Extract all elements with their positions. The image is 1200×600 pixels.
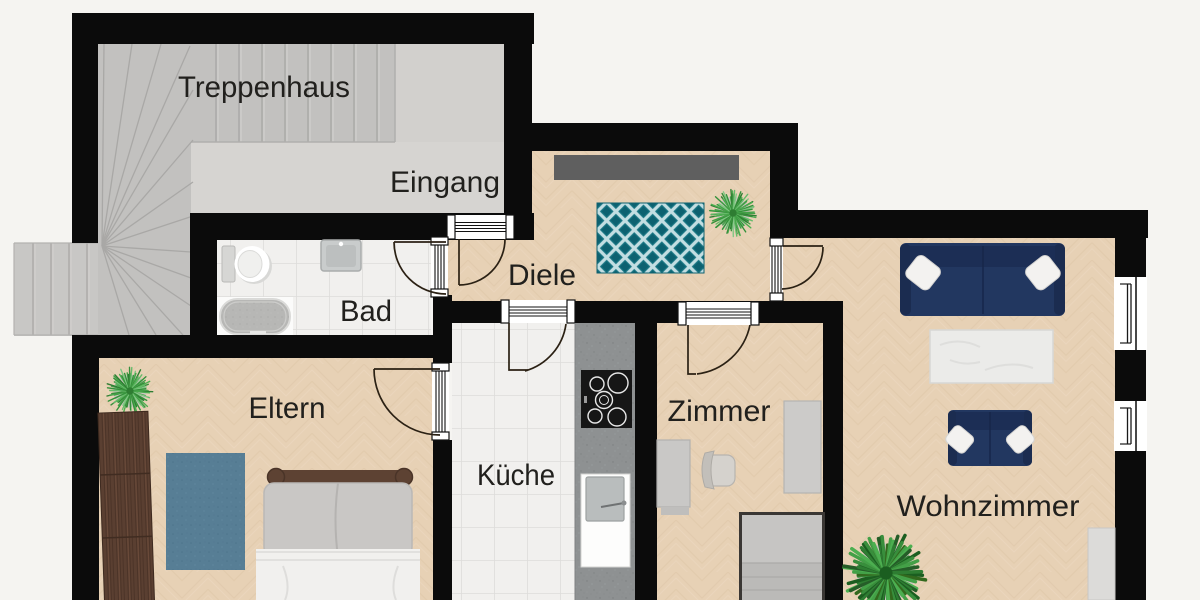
svg-text:Diele: Diele: [508, 259, 576, 292]
svg-text:Treppenhaus: Treppenhaus: [178, 71, 350, 104]
svg-text:Eltern: Eltern: [249, 392, 326, 425]
svg-text:Eingang: Eingang: [390, 166, 500, 199]
svg-text:Zimmer: Zimmer: [668, 395, 771, 428]
svg-text:Küche: Küche: [477, 459, 555, 492]
svg-text:Bad: Bad: [340, 295, 392, 328]
svg-text:Wohnzimmer: Wohnzimmer: [897, 490, 1080, 523]
